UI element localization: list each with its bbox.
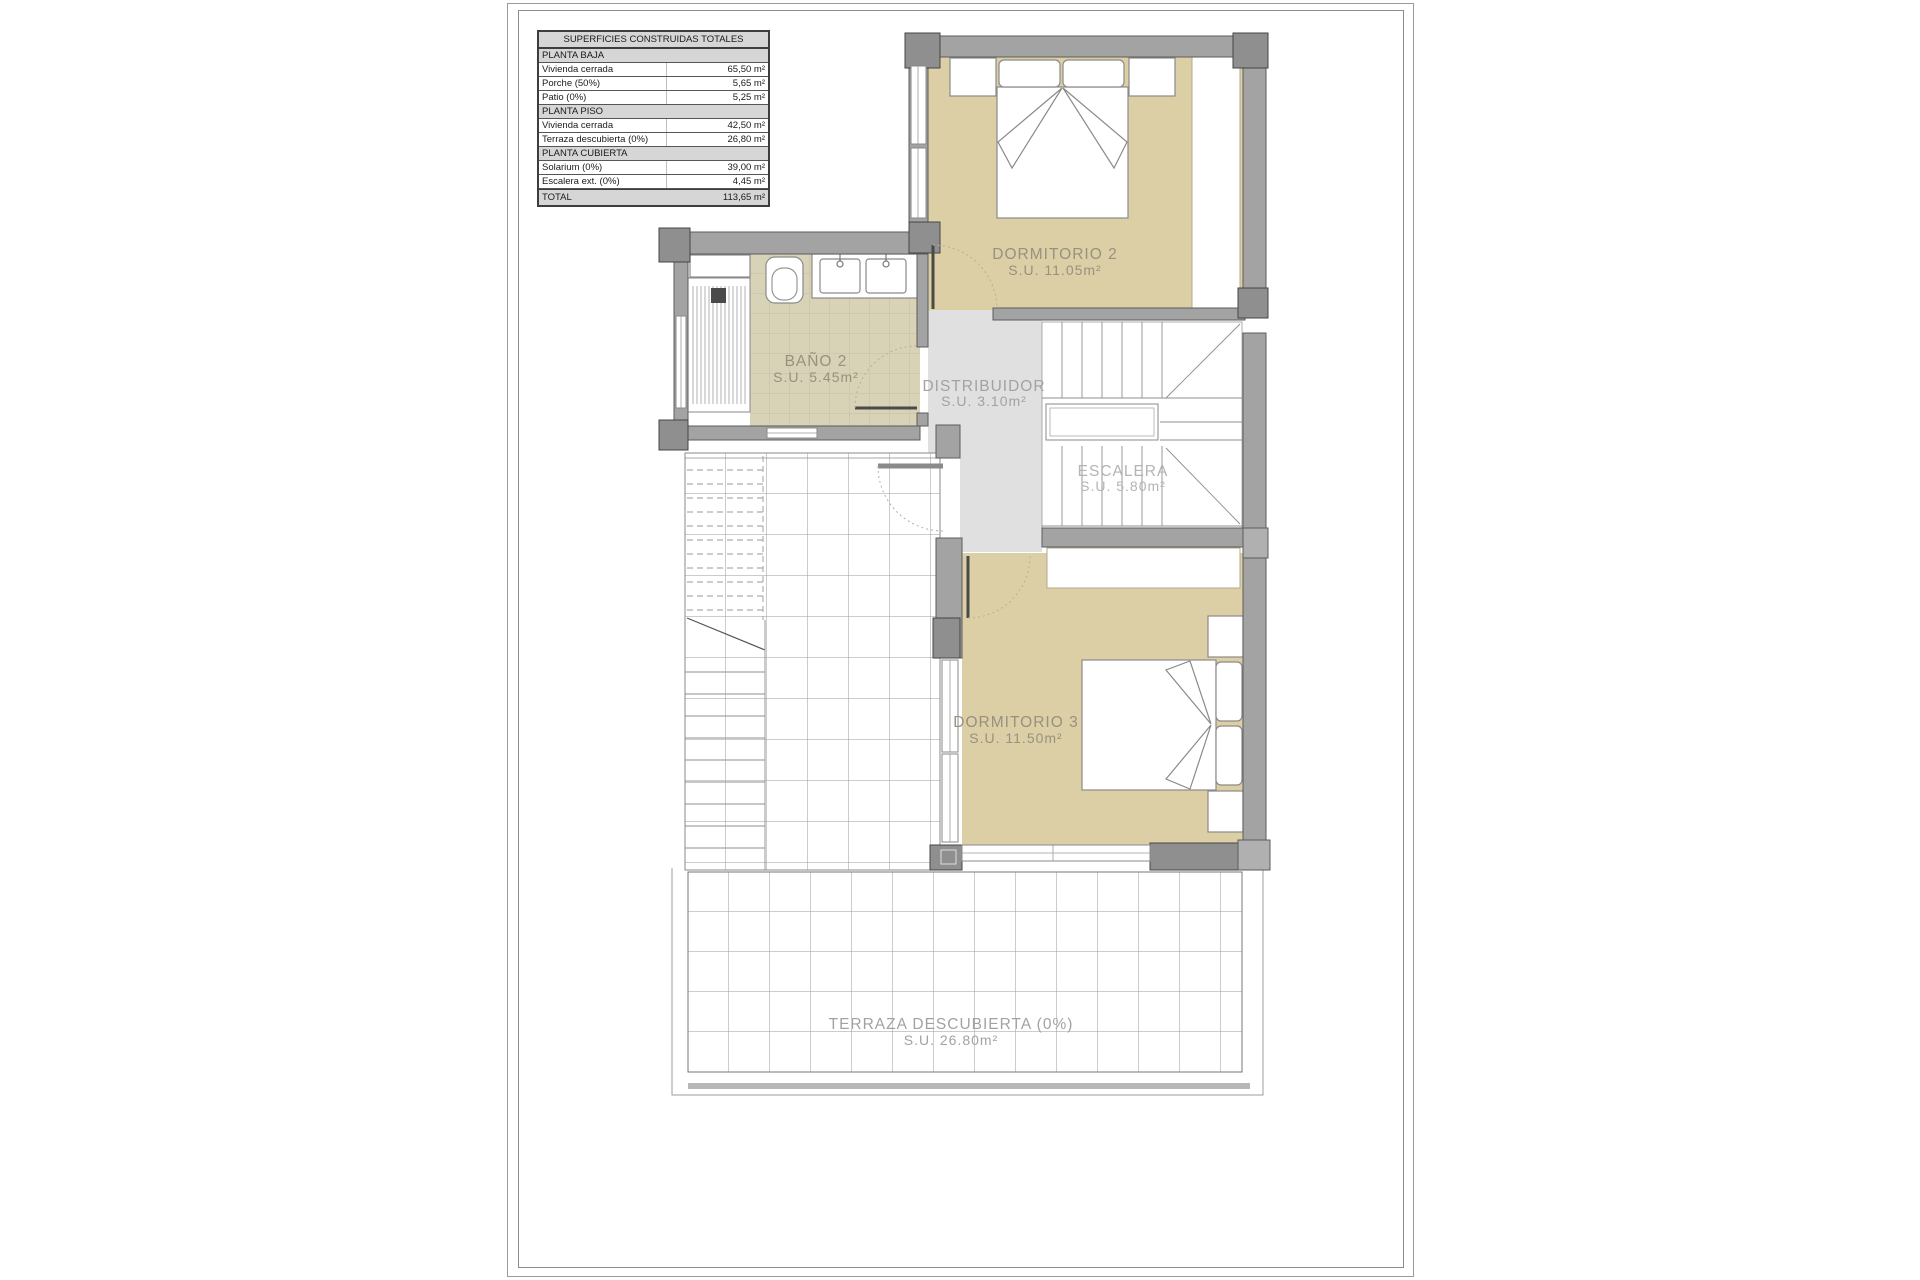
room-dormitorio3 xyxy=(962,548,1243,845)
label-dormitorio3-area: S.U. 11.50m² xyxy=(969,730,1062,746)
shower-drain xyxy=(711,288,726,303)
window-dormitorio2-left xyxy=(911,66,926,218)
window-bano2-bottom xyxy=(767,428,817,438)
toilet-icon xyxy=(766,257,803,303)
dormitorio3-wardrobe xyxy=(1047,548,1240,588)
label-dormitorio2-area: S.U. 11.05m² xyxy=(1008,262,1101,278)
label-escalera-area: S.U. 5.80m² xyxy=(1080,478,1166,494)
label-terraza-area: S.U. 26.80m² xyxy=(904,1032,998,1048)
window-bano2-left xyxy=(676,316,686,408)
label-bano2-area: S.U. 5.45m² xyxy=(773,369,859,385)
dormitorio2-closet xyxy=(1192,57,1240,308)
floor-plan: DORMITORIO 2 S.U. 11.05m² BAÑO 2 S.U. 5.… xyxy=(659,33,1270,1095)
window-dormitorio3-bottom xyxy=(962,845,1150,861)
shower xyxy=(688,278,750,412)
terrace-upper xyxy=(685,453,940,870)
floor-plan-svg: DORMITORIO 2 S.U. 11.05m² BAÑO 2 S.U. 5.… xyxy=(0,0,1920,1280)
label-dormitorio3: DORMITORIO 3 xyxy=(953,714,1078,731)
stairs-escalera xyxy=(1042,322,1242,528)
label-terraza: TERRAZA DESCUBIERTA (0%) xyxy=(829,1016,1074,1033)
bath-shelf xyxy=(690,255,750,277)
room-bano2 xyxy=(688,254,920,426)
label-bano2: BAÑO 2 xyxy=(785,353,848,370)
terrace-lower xyxy=(672,868,1263,1095)
double-sink xyxy=(812,254,918,298)
window-dormitorio3-left xyxy=(942,660,958,842)
label-dormitorio2: DORMITORIO 2 xyxy=(992,246,1117,263)
stair-landing xyxy=(1046,404,1158,440)
label-distribuidor-area: S.U. 3.10m² xyxy=(941,393,1027,409)
